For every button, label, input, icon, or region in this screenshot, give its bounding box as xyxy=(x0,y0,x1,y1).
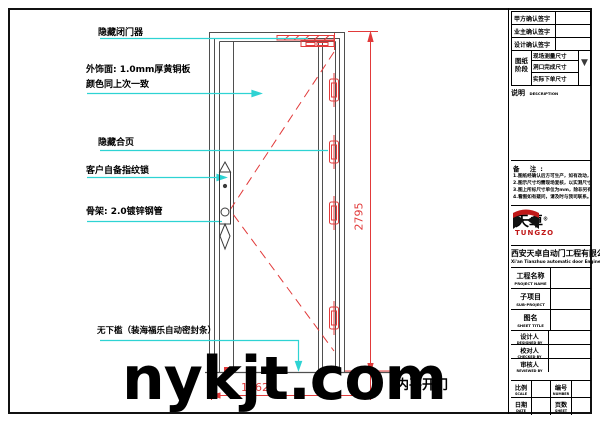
annotation-finish-line1: 外饰面: 1.0mm厚黄铜板 xyxy=(86,62,190,75)
description-label-cn: 说明 xyxy=(511,89,525,97)
hinge-icon xyxy=(330,301,339,335)
date-value-cell xyxy=(532,398,551,415)
company-name-en: Xi'an Tianzhuo automatic door Engineerin… xyxy=(511,259,591,264)
checked-by-label: 校对人 xyxy=(511,346,548,355)
description-label-en: DESCRIPTION xyxy=(529,91,558,96)
stage-row: 实际下单尺寸 xyxy=(532,73,578,84)
date-label: 日期 xyxy=(511,400,531,409)
sheet-label: 页数 xyxy=(551,400,571,409)
annotation-hinge: 隐藏合页 xyxy=(98,135,134,148)
annotation-skeleton: 骨架: 2.0镀锌钢管 xyxy=(86,204,163,217)
people-table: 设计人 DESIGNED BY 校对人 CHECKED BY 审核人 REVIE… xyxy=(511,330,591,372)
annotation-door-closer: 隐藏闭门器 xyxy=(98,25,143,38)
company-name-block: 西安天卓自动门工程有限公司 Xi'an Tianzhuo automatic d… xyxy=(511,245,591,267)
company-logo: 天卓® TUNGZO xyxy=(511,205,591,245)
notes-section: 备 注: 1.图纸经确认后方可生产，如有改动，不得生效。 2.图示尺寸均需现场复… xyxy=(511,160,591,205)
hinge-icon xyxy=(330,135,339,169)
dim-height-value: 2795 xyxy=(353,195,366,239)
stage-marker-cell: ▼ xyxy=(578,50,590,85)
annotation-lock: 客户自备指纹锁 xyxy=(86,163,149,176)
people-row: 审核人 REVIEWED BY xyxy=(511,358,591,372)
signature-value-cell xyxy=(556,12,590,24)
signature-row: 业主确认签字 xyxy=(512,25,590,38)
project-info-table: 工程名称 PROJECT NAME 子项目 SUB-PROJECT 图名 SHE… xyxy=(511,267,591,330)
sheet-title-label: 图名 xyxy=(511,313,550,323)
signature-label: 设计确认签字 xyxy=(512,38,556,50)
drawing-stage-section: 图纸 阶段 现场测量尺寸 洞口完成尺寸 实际下单尺寸 ▼ xyxy=(511,50,591,86)
stage-marker-icon: ▼ xyxy=(581,58,588,68)
note-line: 3.图上所标尺寸单位为mm，除非另有标注。 xyxy=(513,187,590,194)
note-line: 1.图纸经确认后方可生产，如有改动，不得生效。 xyxy=(513,173,590,180)
project-row: 图名 SHEET TITLE xyxy=(511,309,591,330)
tungzo-logo-icon xyxy=(511,206,541,234)
note-line: 4.看图如有疑问，请及时与我司联系。 xyxy=(513,194,590,201)
sub-project-label: 子项目 xyxy=(511,292,550,302)
project-row: 子项目 SUB-PROJECT xyxy=(511,288,591,309)
reviewed-by-label: 审核人 xyxy=(511,360,548,369)
stage-rows: 现场测量尺寸 洞口完成尺寸 实际下单尺寸 xyxy=(532,50,578,85)
annotation-finish-line2: 颜色同上次一致 xyxy=(86,77,149,90)
scale-value-cell xyxy=(532,381,551,397)
annotation-no-sill: 无下槛（装海福乐自动密封条） xyxy=(97,324,216,336)
hinge-icon xyxy=(330,196,339,230)
company-name-cn: 西安天卓自动门工程有限公司 xyxy=(511,248,591,259)
project-name-label: 工程名称 xyxy=(511,271,550,281)
note-line: 2.图示尺寸均需现场复核，以实测尺寸为准。 xyxy=(513,180,590,187)
signature-table: 甲方确认签字 业主确认签字 设计确认签字 xyxy=(511,11,591,51)
notes-title: 备 注: xyxy=(513,163,590,173)
number-label: 编号 xyxy=(551,383,571,392)
people-row: 校对人 CHECKED BY xyxy=(511,344,591,358)
signature-label: 业主确认签字 xyxy=(512,25,556,37)
sheet-value-cell xyxy=(572,398,591,415)
hinge-icon xyxy=(330,73,339,107)
door-frame xyxy=(209,33,345,373)
number-value-cell xyxy=(572,381,591,397)
stage-row: 现场测量尺寸 xyxy=(532,50,578,61)
project-row: 工程名称 PROJECT NAME xyxy=(511,267,591,288)
people-row: 设计人 DESIGNED BY xyxy=(511,330,591,344)
description-header: 说明 DESCRIPTION xyxy=(511,88,591,98)
stage-row: 洞口完成尺寸 xyxy=(532,61,578,72)
registered-mark-icon: ® xyxy=(543,216,548,222)
title-block: 甲方确认签字 业主确认签字 设计确认签字 图纸 阶段 现场测量尺寸 洞口完成尺寸… xyxy=(508,8,592,414)
signature-label: 甲方确认签字 xyxy=(512,12,556,24)
footer-grid: 比例 SCALE 编号 NUMBER 日期 DATE 页数 SHEET xyxy=(511,380,591,414)
scale-label: 比例 xyxy=(511,383,531,392)
watermark-text: nykjt.com xyxy=(122,344,446,414)
signature-value-cell xyxy=(556,25,590,37)
drawing-sheet: 隐藏闭门器 外饰面: 1.0mm厚黄铜板 颜色同上次一致 隐藏合页 客户自备指纹… xyxy=(0,0,600,423)
designed-by-label: 设计人 xyxy=(511,332,548,341)
hinge-icons xyxy=(330,73,339,335)
signature-value-cell xyxy=(556,38,590,50)
stage-section-label: 图纸 阶段 xyxy=(512,50,532,85)
handle-lock-icon xyxy=(220,162,231,249)
signature-row: 甲方确认签字 xyxy=(512,12,590,25)
